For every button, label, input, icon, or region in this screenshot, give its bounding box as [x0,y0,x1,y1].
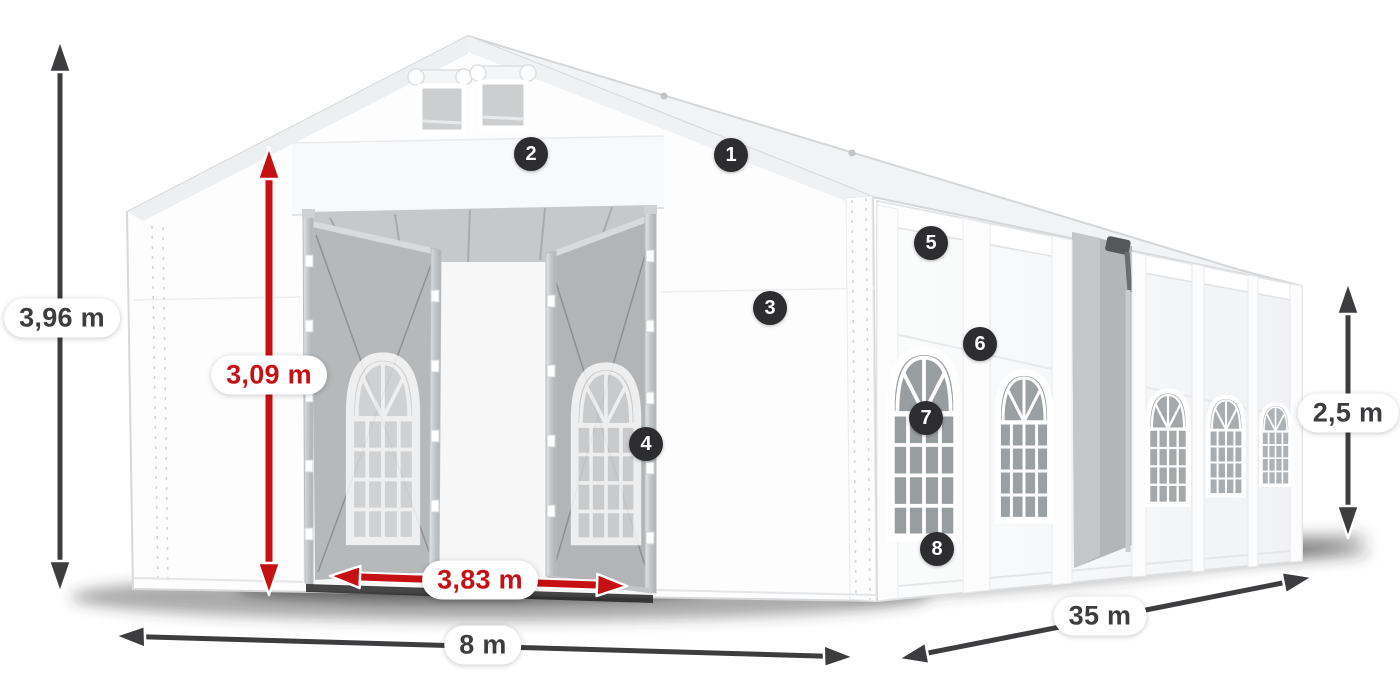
door-window-print-left [350,357,416,542]
label-entrance-width: 3,83 m [422,560,538,599]
marker-4: 4 [629,427,663,461]
door-panel-right [548,218,652,590]
marker-7: 7 [909,401,943,435]
marker-6: 6 [963,327,997,361]
front-entrance [302,204,657,603]
label-entrance-height: 3,09 m [211,355,327,394]
label-length: 35 m [1054,596,1147,635]
marker-8: 8 [920,532,954,566]
marker-2: 2 [514,137,548,171]
marker-1: 1 [714,138,748,172]
label-side-height: 2,5 m [1298,393,1399,432]
marker-3: 3 [753,291,787,325]
door-panel-left [312,222,437,580]
tent-illustration [0,0,1400,700]
door-window-print-right [575,366,638,541]
side-open-panel [1072,232,1132,568]
tent-dimension-diagram: 3,96 m 3,09 m 3,83 m 8 m 35 m 2,5 m 1 2 … [0,0,1400,700]
label-gable-width: 8 m [444,625,521,664]
marker-5: 5 [914,226,948,260]
label-total-height: 3,96 m [4,298,120,337]
